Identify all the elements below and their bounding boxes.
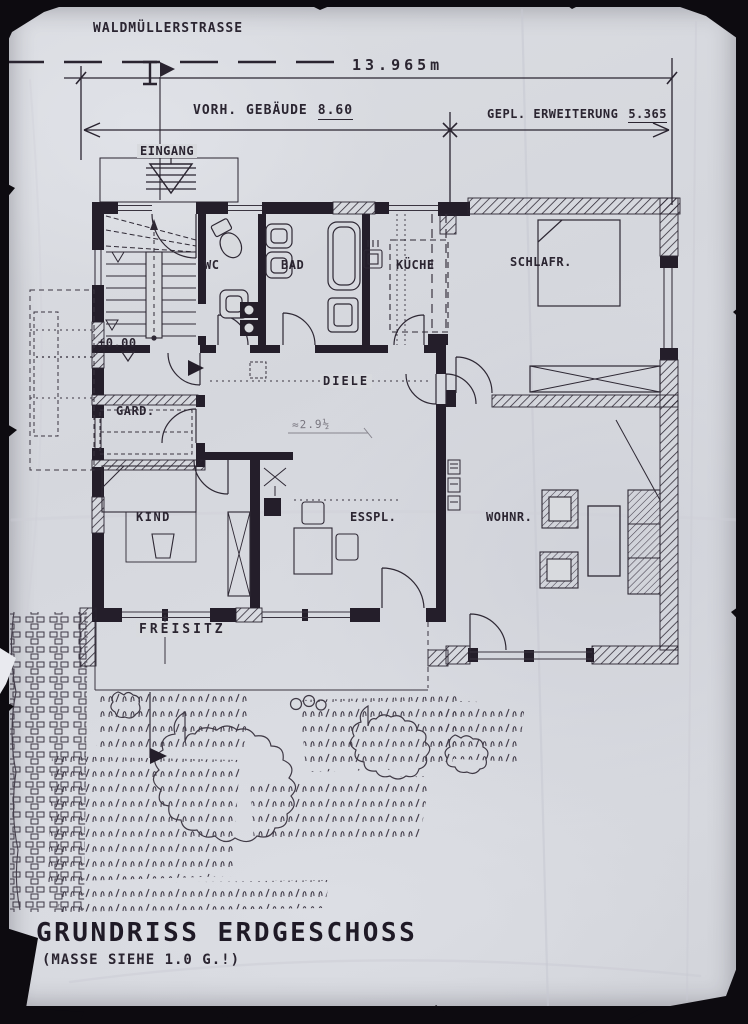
handwritten-dimension: ≈2.9½ <box>292 418 330 432</box>
dimension-existing-value: 8.60 <box>318 103 353 120</box>
room-label-wc: WC <box>204 258 219 272</box>
room-label-wohnzimmer: WOHNR. <box>486 510 532 524</box>
room-label-schlafzimmer: SCHLAFR. <box>510 255 572 269</box>
dimension-lines <box>64 58 677 205</box>
staircase <box>106 216 196 341</box>
room-label-garderobe: GARD. <box>116 404 155 418</box>
survey-marker <box>143 62 175 200</box>
level-marker <box>36 352 204 376</box>
entrance-steps <box>100 158 238 202</box>
entrance-label: EINGANG <box>137 144 197 158</box>
room-label-kind: KIND <box>136 510 171 524</box>
room-label-bad: BAD <box>281 258 304 272</box>
stair-direction-arrow <box>150 219 158 230</box>
windows <box>95 206 672 660</box>
room-label-diele: DIELE <box>320 374 372 388</box>
brick-wall-sketch <box>10 612 88 912</box>
dimension-existing: VORH. GEBÄUDE8.60 <box>193 103 353 118</box>
kitchen-fixtures <box>364 240 448 332</box>
dimension-extension-label: GEPL. ERWEITERUNG <box>487 107 618 121</box>
garden-sketch <box>48 692 525 912</box>
wc-fixtures <box>210 218 258 336</box>
flag-icon <box>160 62 175 77</box>
dimension-existing-label: VORH. GEBÄUDE <box>193 103 308 118</box>
plan-subtitle: (MASSE SIEHE 1.0 G.!) <box>42 952 240 968</box>
scanned-floor-plan-page: WALDMÜLLERSTRASSE 13.965m VORH. GEBÄUDE8… <box>0 0 748 1024</box>
dimension-total: 13.965m <box>352 56 443 74</box>
floor-level-label: ±0.00 <box>98 336 137 350</box>
room-label-freisitz: FREISITZ <box>136 622 229 637</box>
dimension-extension-value: 5.365 <box>628 107 667 123</box>
street-name: WALDMÜLLERSTRASSE <box>93 21 243 36</box>
room-label-kueche: KÜCHE <box>396 258 435 272</box>
wohnzimmer-furniture <box>448 420 660 594</box>
removed-wall-dashed <box>397 214 446 345</box>
essplatz-furniture <box>264 468 358 574</box>
section-arrow-icon <box>188 360 204 376</box>
schlafzimmer-furniture <box>530 220 660 392</box>
plan-title: GRUNDRISS ERDGESCHOSS <box>36 918 417 948</box>
room-label-essplatz: ESSPL. <box>350 510 396 524</box>
bad-fixtures <box>266 222 360 332</box>
dimension-extension: GEPL. ERWEITERUNG5.365 <box>487 107 667 121</box>
